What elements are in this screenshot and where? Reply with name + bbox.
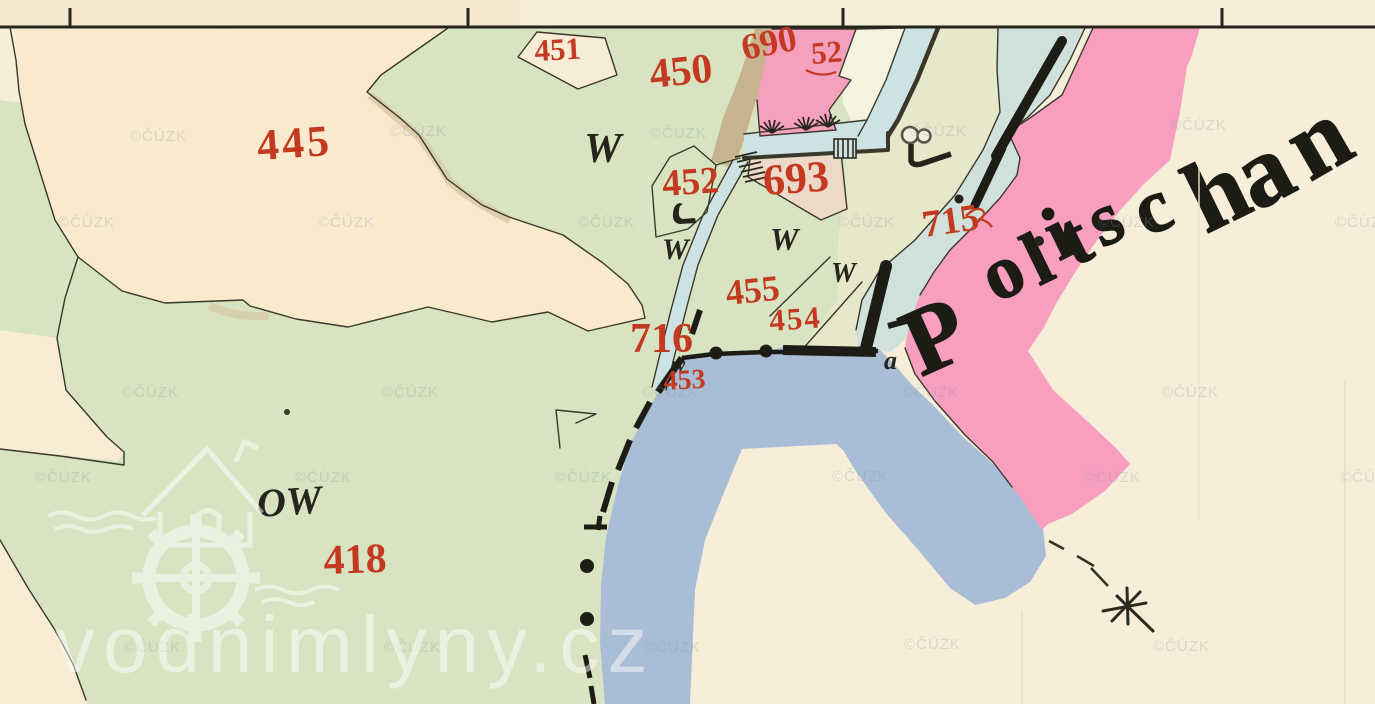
svg-text:W: W (770, 221, 801, 257)
svg-text:©ČÚZK: ©ČÚZK (130, 128, 187, 145)
svg-text:©ČÚZK: ©ČÚZK (1170, 117, 1227, 134)
svg-text:©ČÚZK: ©ČÚZK (58, 214, 115, 231)
svg-text:450: 450 (647, 46, 714, 98)
svg-text:418: 418 (323, 536, 388, 584)
svg-text:©ČÚZK: ©ČÚZK (318, 214, 375, 231)
svg-text:©ČÚZK: ©ČÚZK (650, 125, 707, 142)
svg-text:a: a (884, 346, 897, 375)
svg-text:©ČÚZK: ©ČÚZK (1153, 638, 1210, 655)
svg-text:454: 454 (768, 299, 823, 338)
svg-text:©ČÚZK: ©ČÚZK (1098, 214, 1155, 231)
svg-text:©ČÚZK: ©ČÚZK (832, 468, 889, 485)
svg-text:693: 693 (761, 151, 830, 204)
svg-text:©ČÚZK: ©ČÚZK (555, 469, 612, 486)
svg-text:©ČÚZK: ©ČÚZK (1084, 469, 1141, 486)
svg-text:w: w (672, 354, 686, 376)
svg-text:©ČÚZK: ©ČÚZK (1162, 384, 1219, 401)
svg-text:©ČÚZK: ©ČÚZK (1335, 214, 1375, 231)
svg-text:©ČÚZK: ©ČÚZK (35, 469, 92, 486)
svg-text:©ČÚZK: ©ČÚZK (578, 214, 635, 231)
svg-text:W: W (584, 126, 624, 172)
svg-text:vodnimlyny.cz: vodnimlyny.cz (55, 600, 655, 689)
svg-text:©ČÚZK: ©ČÚZK (838, 214, 895, 231)
svg-text:715: 715 (919, 196, 981, 246)
svg-text:©ČÚZK: ©ČÚZK (122, 384, 179, 401)
svg-text:451: 451 (534, 31, 582, 68)
svg-text:W: W (662, 233, 691, 266)
svg-text:445: 445 (255, 116, 333, 170)
svg-text:52: 52 (810, 33, 844, 71)
svg-text:©ČÚZK: ©ČÚZK (1340, 469, 1375, 486)
svg-text:©ČÚZK: ©ČÚZK (910, 123, 967, 140)
svg-text:©ČÚZK: ©ČÚZK (390, 123, 447, 140)
svg-text:452: 452 (661, 159, 721, 205)
svg-text:©ČÚZK: ©ČÚZK (902, 384, 959, 401)
svg-text:©ČÚZK: ©ČÚZK (642, 384, 699, 401)
svg-text:©ČÚZK: ©ČÚZK (904, 636, 961, 653)
svg-text:©ČÚZK: ©ČÚZK (382, 384, 439, 401)
svg-text:©ČÚZK: ©ČÚZK (295, 469, 352, 486)
svg-text:W: W (831, 258, 858, 289)
